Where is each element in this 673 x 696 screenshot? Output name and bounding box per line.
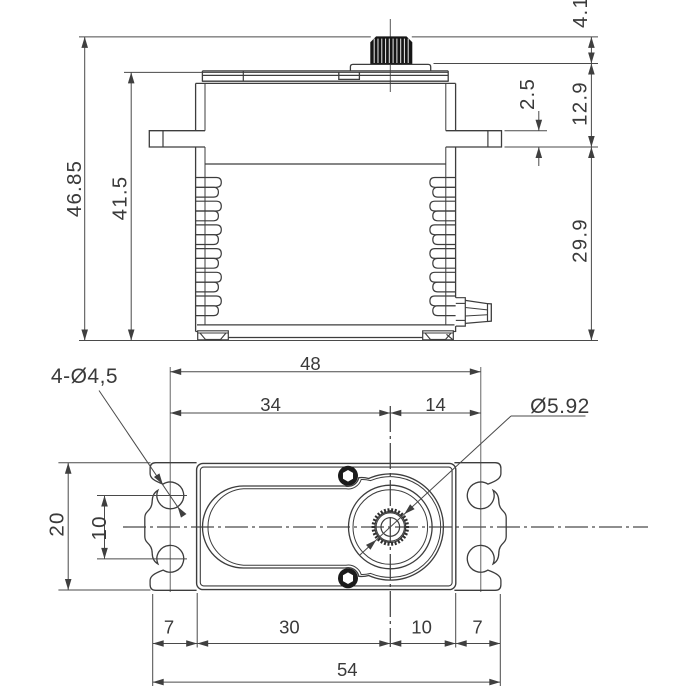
svg-text:10: 10 [411,617,432,638]
svg-text:54: 54 [337,659,358,680]
svg-text:7: 7 [472,617,482,638]
svg-text:30: 30 [279,617,300,638]
svg-text:48: 48 [300,353,321,374]
svg-text:46.85: 46.85 [63,160,86,217]
svg-text:10: 10 [88,515,111,540]
svg-text:Ø5.92: Ø5.92 [530,395,590,418]
svg-text:2.5: 2.5 [516,78,539,110]
svg-text:4-Ø4,5: 4-Ø4,5 [51,365,118,388]
svg-text:14: 14 [425,394,446,415]
svg-text:4.1: 4.1 [569,0,592,28]
svg-text:7: 7 [164,617,174,638]
svg-text:12.9: 12.9 [569,81,592,126]
svg-text:29.9: 29.9 [569,218,592,263]
svg-text:34: 34 [260,394,281,415]
svg-text:20: 20 [46,511,69,536]
svg-text:41.5: 41.5 [108,176,131,221]
